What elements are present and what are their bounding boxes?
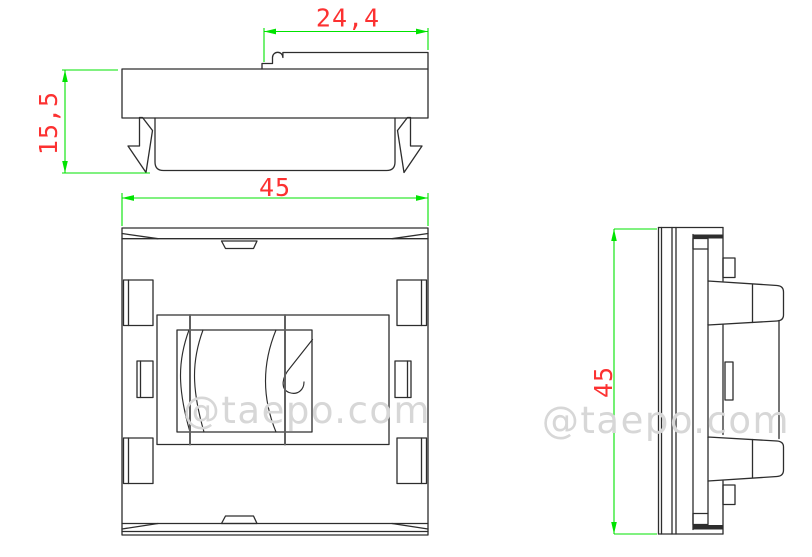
top-view	[122, 52, 428, 172]
front-view-top-tab	[222, 241, 258, 249]
side-view-plate-layers	[659, 228, 677, 535]
side-view-tab-upper	[723, 258, 735, 278]
front-view-bottom-tab	[222, 516, 258, 524]
top-view-snap-clip-left	[128, 118, 153, 173]
top-view-faceplate-body	[122, 69, 428, 118]
dimension-arrowheads	[62, 29, 617, 534]
technical-drawing-canvas: 24,4 15,5 45 45 @taepo.com @taepo.com	[0, 0, 812, 557]
watermark-right: @taepo.com	[542, 399, 790, 442]
arrow-right-24	[416, 29, 428, 35]
arrow-up-45s	[611, 229, 617, 241]
front-view-bottom-corner-chamfers	[122, 524, 428, 530]
side-view-bottom-step	[693, 514, 708, 525]
top-view-back-box	[155, 118, 395, 171]
top-view-snap-clip-right	[398, 118, 423, 173]
side-view-top-bar	[693, 235, 723, 239]
dimension-text-front-width: 45	[259, 173, 291, 202]
dim-top-width	[264, 28, 428, 62]
watermark-left: @taepo.com	[183, 389, 431, 432]
arrow-down-45s	[611, 522, 617, 534]
side-view-bottom-bar	[693, 525, 723, 530]
top-view-jack-strip	[262, 52, 428, 69]
dimension-text-side-height: 45	[589, 366, 618, 398]
dim-side-height	[614, 229, 657, 534]
front-view-plate-outline	[122, 228, 428, 535]
dimension-annotations	[62, 28, 657, 534]
side-view-clip-upper	[708, 281, 784, 325]
front-view-bottom-edge-lines	[122, 524, 428, 532]
arrow-down-155	[62, 161, 68, 173]
side-view-tab-lower	[723, 485, 735, 505]
arrow-up-155	[62, 70, 68, 82]
side-view-clip-lower	[708, 437, 784, 481]
front-view	[122, 228, 428, 535]
front-view-top-corner-chamfers	[122, 234, 428, 239]
arrow-right-45f	[416, 195, 428, 201]
drawing-outlines	[122, 52, 784, 535]
watermarks: @taepo.com @taepo.com	[183, 389, 790, 442]
side-view-top-step	[693, 239, 708, 250]
side-view	[659, 228, 784, 535]
arrow-left-45f	[122, 195, 134, 201]
technical-drawing-page: 24,4 15,5 45 45 @taepo.com @taepo.com	[0, 0, 812, 557]
dimension-text-top-height: 15,5	[34, 91, 63, 155]
side-view-mid-latch	[725, 362, 733, 400]
front-view-shutter-hook	[283, 340, 312, 394]
dim-top-height	[62, 70, 150, 173]
arrow-left-24	[264, 29, 276, 35]
dimension-text-top-width: 24,4	[316, 4, 380, 33]
front-view-latch-left	[137, 361, 153, 398]
